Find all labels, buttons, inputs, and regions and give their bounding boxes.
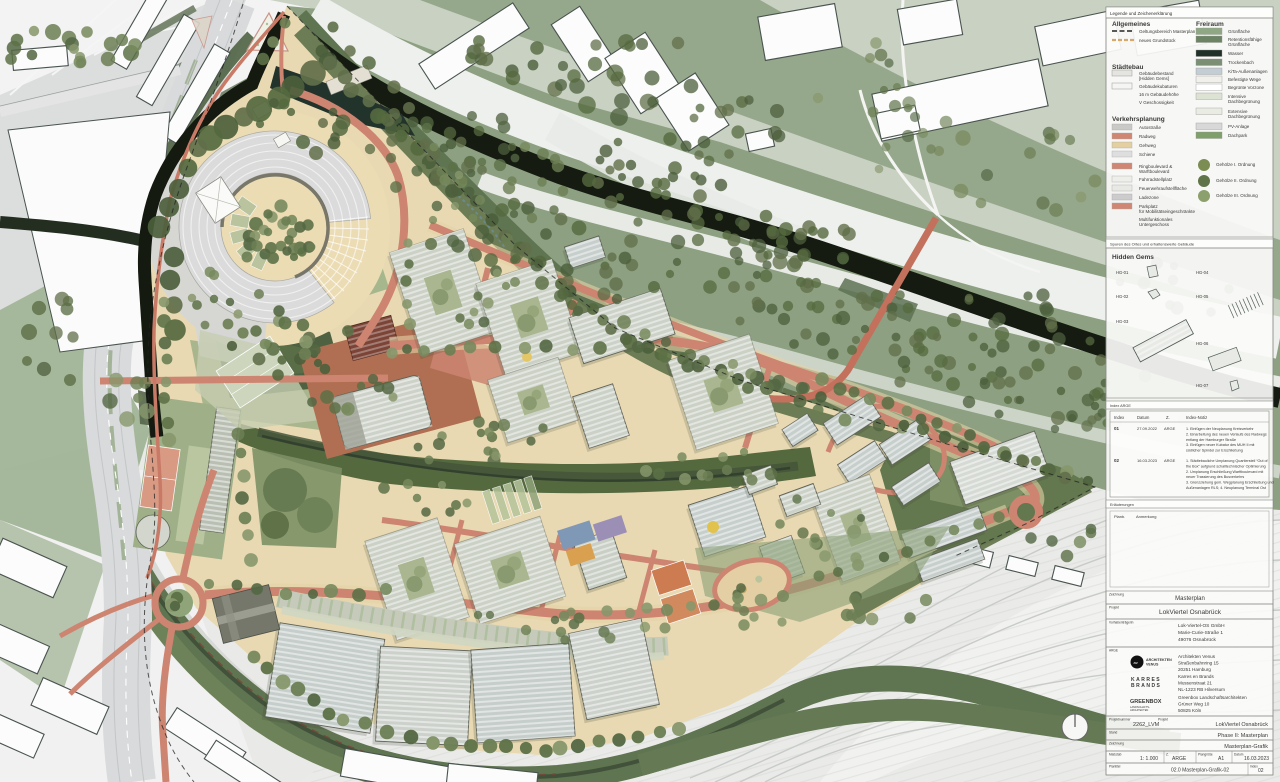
svg-text:Plangröße: Plangröße bbox=[1198, 753, 1213, 757]
svg-text:Marie-Curie-Straße 1: Marie-Curie-Straße 1 bbox=[1178, 630, 1223, 636]
svg-text:Dachbegrünung: Dachbegrünung bbox=[1228, 114, 1261, 119]
svg-text:Gehölze III. Ordnung: Gehölze III. Ordnung bbox=[1216, 193, 1258, 198]
svg-text:2262_LVM: 2262_LVM bbox=[1133, 722, 1160, 728]
svg-text:Phase II: Masterplan: Phase II: Masterplan bbox=[1218, 733, 1268, 739]
svg-text:Greenbox Landschaftsarchitekte: Greenbox Landschaftsarchitekten bbox=[1178, 695, 1247, 700]
svg-text:Freiraum: Freiraum bbox=[1196, 21, 1224, 28]
svg-text:3. Grenzziehung gem. Wegplanun: 3. Grenzziehung gem. Wegplanung Erschlie… bbox=[1186, 481, 1274, 485]
svg-text:Feuerwehraufstellfläche: Feuerwehraufstellfläche bbox=[1139, 186, 1187, 191]
svg-text:Stand: Stand bbox=[1109, 731, 1118, 735]
svg-text:Masterplan: Masterplan bbox=[1175, 596, 1205, 602]
svg-text:Gehweg: Gehweg bbox=[1139, 143, 1156, 148]
svg-text:av: av bbox=[1134, 660, 1138, 665]
svg-text:Spuren des Ortes und erhaltens: Spuren des Ortes und erhaltenswerte Gebä… bbox=[1110, 242, 1195, 247]
svg-text:Außenanlagen RLS; 4. Neuplanun: Außenanlagen RLS; 4. Neuplanung Terminal… bbox=[1186, 486, 1266, 490]
svg-text:Untergeschoss: Untergeschoss bbox=[1139, 222, 1170, 227]
svg-text:Zeichnung: Zeichnung bbox=[1109, 742, 1124, 746]
svg-text:südlicher Spindel zur Erschlie: südlicher Spindel zur Erschließung bbox=[1186, 449, 1243, 453]
svg-text:16.03.2023: 16.03.2023 bbox=[1137, 458, 1158, 463]
svg-text:Index: Index bbox=[1250, 765, 1258, 769]
svg-text:Projekt: Projekt bbox=[1158, 718, 1168, 722]
svg-text:ARCHITEKTEN: ARCHITEKTEN bbox=[1146, 658, 1172, 662]
svg-text:Befestigte Wege: Befestigte Wege bbox=[1228, 77, 1261, 82]
svg-text:Grünfläche: Grünfläche bbox=[1228, 29, 1251, 34]
svg-text:20251 Hamburg: 20251 Hamburg bbox=[1178, 667, 1211, 672]
svg-text:Begrünte Vorzone: Begrünte Vorzone bbox=[1228, 85, 1265, 90]
svg-text:LokViertel Osnabrück: LokViertel Osnabrück bbox=[1159, 609, 1222, 616]
svg-text:the Box” aufgrund schalltechni: the Box” aufgrund schalltechnischer Opti… bbox=[1186, 464, 1266, 468]
svg-text:Fahrradstellplatz: Fahrradstellplatz bbox=[1139, 177, 1173, 182]
svg-text:entlang der Hamburger Straße: entlang der Hamburger Straße bbox=[1186, 438, 1236, 442]
svg-text:Radweg: Radweg bbox=[1139, 134, 1156, 139]
svg-text:Datum: Datum bbox=[1234, 753, 1244, 757]
svg-text:Z.: Z. bbox=[1166, 415, 1170, 420]
svg-text:HG-01: HG-01 bbox=[1116, 270, 1129, 275]
svg-text:für Mobilitätseingeschränkte: für Mobilitätseingeschränkte bbox=[1139, 209, 1196, 214]
svg-text:ARGE: ARGE bbox=[1109, 649, 1118, 653]
svg-text:HG-06: HG-06 bbox=[1196, 341, 1209, 346]
svg-text:2. Umplanung Erschließung Warf: 2. Umplanung Erschließung Warftboulevard… bbox=[1186, 470, 1263, 474]
svg-text:Trockenbach: Trockenbach bbox=[1228, 60, 1254, 65]
svg-text:Plantitel: Plantitel bbox=[1109, 765, 1121, 769]
svg-text:Lok-Viertel-OS GmbH: Lok-Viertel-OS GmbH bbox=[1178, 623, 1225, 629]
svg-text:ARGE: ARGE bbox=[1172, 756, 1187, 762]
svg-text:HG-03: HG-03 bbox=[1116, 319, 1129, 324]
svg-text:02: 02 bbox=[1114, 458, 1120, 463]
svg-text:Gehölze II. Ordnung: Gehölze II. Ordnung bbox=[1216, 178, 1257, 183]
svg-text:Verkehrsplanung: Verkehrsplanung bbox=[1112, 116, 1165, 123]
svg-text:Dachbegrünung: Dachbegrünung bbox=[1228, 99, 1261, 104]
svg-text:Index-Notiz: Index-Notiz bbox=[1186, 415, 1207, 420]
svg-text:Planb.: Planb. bbox=[1114, 514, 1125, 519]
svg-text:Wasser: Wasser bbox=[1228, 51, 1244, 56]
svg-text:Hidden Gems: Hidden Gems bbox=[1112, 254, 1154, 261]
svg-text:1. Einfügen der Neuplanung Kre: 1. Einfügen der Neuplanung Kreisverkehr bbox=[1186, 427, 1254, 431]
svg-text:50825 Köln: 50825 Köln bbox=[1178, 708, 1202, 713]
svg-text:49076 Osnabrück: 49076 Osnabrück bbox=[1178, 637, 1216, 643]
svg-text:1. Städtebauliche Umplanung Qu: 1. Städtebauliche Umplanung Quartierstei… bbox=[1186, 459, 1269, 463]
svg-text:Straßenbahnring 15: Straßenbahnring 15 bbox=[1178, 661, 1219, 666]
svg-text:GREENBOX: GREENBOX bbox=[1130, 699, 1162, 705]
svg-text:Vorhabenträgerin: Vorhabenträgerin bbox=[1109, 621, 1134, 625]
svg-text:ARGE: ARGE bbox=[1164, 458, 1176, 463]
svg-text:HG-02: HG-02 bbox=[1116, 294, 1129, 299]
svg-text:02: 02 bbox=[1258, 768, 1264, 774]
svg-text:PV-Anlage: PV-Anlage bbox=[1228, 124, 1250, 129]
svg-text:Schiene: Schiene bbox=[1139, 152, 1156, 157]
svg-text:V Geschossigkeit: V Geschossigkeit bbox=[1139, 100, 1175, 105]
svg-text:3. Einfügen neuer Kubatur des: 3. Einfügen neuer Kubatur des MUH II mit bbox=[1186, 443, 1254, 447]
svg-text:Grünfläche: Grünfläche bbox=[1228, 42, 1251, 47]
svg-text:Dachpark: Dachpark bbox=[1228, 133, 1248, 138]
svg-text:Autostraße: Autostraße bbox=[1139, 125, 1162, 130]
svg-text:02.0 Masterplan-Grafik-02: 02.0 Masterplan-Grafik-02 bbox=[1171, 768, 1229, 774]
svg-text:Karres en Brands: Karres en Brands bbox=[1178, 674, 1214, 679]
svg-text:Z.: Z. bbox=[1166, 753, 1169, 757]
svg-text:Grüner Weg 10: Grüner Weg 10 bbox=[1178, 702, 1210, 707]
svg-text:27.09.2022: 27.09.2022 bbox=[1137, 426, 1158, 431]
svg-text:Geltungsbereich Masterplan: Geltungsbereich Masterplan bbox=[1139, 29, 1196, 34]
svg-text:Datum: Datum bbox=[1137, 415, 1150, 420]
svg-text:[Hidden Gems]: [Hidden Gems] bbox=[1139, 76, 1169, 81]
svg-text:HG-07: HG-07 bbox=[1196, 383, 1209, 388]
svg-text:Architekten Venus: Architekten Venus bbox=[1178, 654, 1216, 659]
svg-text:BRANDS: BRANDS bbox=[1131, 683, 1161, 689]
svg-text:01: 01 bbox=[1114, 426, 1120, 431]
svg-text:ARCHITEKTEN: ARCHITEKTEN bbox=[1130, 708, 1148, 712]
svg-text:1: 1.000: 1: 1.000 bbox=[1140, 756, 1158, 762]
svg-text:Gehölze I. Ordnung: Gehölze I. Ordnung bbox=[1216, 162, 1256, 167]
svg-text:HG-05: HG-05 bbox=[1196, 294, 1209, 299]
svg-text:ARGE: ARGE bbox=[1164, 426, 1176, 431]
svg-text:Zeichnung: Zeichnung bbox=[1109, 593, 1124, 597]
svg-text:NL-1223 RB Hilversum: NL-1223 RB Hilversum bbox=[1178, 687, 1225, 692]
svg-text:Projekt: Projekt bbox=[1109, 606, 1119, 610]
svg-text:2. Einarbeitung des neuen Verl: 2. Einarbeitung des neuen Verlaufs des R… bbox=[1186, 432, 1267, 436]
svg-text:VENUS: VENUS bbox=[1146, 663, 1159, 667]
svg-text:A1: A1 bbox=[1218, 756, 1224, 762]
svg-text:Index ARGE: Index ARGE bbox=[1110, 404, 1131, 408]
svg-text:Ladezone: Ladezone bbox=[1139, 195, 1159, 200]
svg-text:Anmerkung: Anmerkung bbox=[1136, 514, 1156, 519]
svg-text:Mussenstraat 21: Mussenstraat 21 bbox=[1178, 681, 1212, 686]
svg-text:Maßstab: Maßstab bbox=[1109, 753, 1122, 757]
svg-text:16.03.2023: 16.03.2023 bbox=[1244, 756, 1269, 762]
svg-text:neues Grundstück: neues Grundstück bbox=[1139, 38, 1176, 43]
svg-text:Masterplan-Grafik: Masterplan-Grafik bbox=[1224, 744, 1268, 750]
svg-text:Gebäudekubaturen: Gebäudekubaturen bbox=[1139, 84, 1178, 89]
svg-text:Index: Index bbox=[1114, 415, 1125, 420]
svg-text:Allgemeines: Allgemeines bbox=[1112, 21, 1151, 28]
svg-text:HG-04: HG-04 bbox=[1196, 270, 1209, 275]
svg-text:neuer Trassierung des Busverke: neuer Trassierung des Busverkehrs bbox=[1186, 475, 1244, 479]
svg-text:16 m Gebäudehöhe: 16 m Gebäudehöhe bbox=[1139, 92, 1179, 97]
svg-text:Projektnummer: Projektnummer bbox=[1109, 718, 1132, 722]
svg-text:Warftboulevard: Warftboulevard bbox=[1139, 169, 1170, 174]
svg-text:Legende und Zeichenerklärung: Legende und Zeichenerklärung bbox=[1110, 11, 1173, 16]
svg-text:Erläuterungen: Erläuterungen bbox=[1110, 503, 1134, 507]
svg-text:KiTa-Außenanlagen: KiTa-Außenanlagen bbox=[1228, 69, 1268, 74]
svg-text:LokViertel Osnabrück: LokViertel Osnabrück bbox=[1216, 722, 1269, 728]
